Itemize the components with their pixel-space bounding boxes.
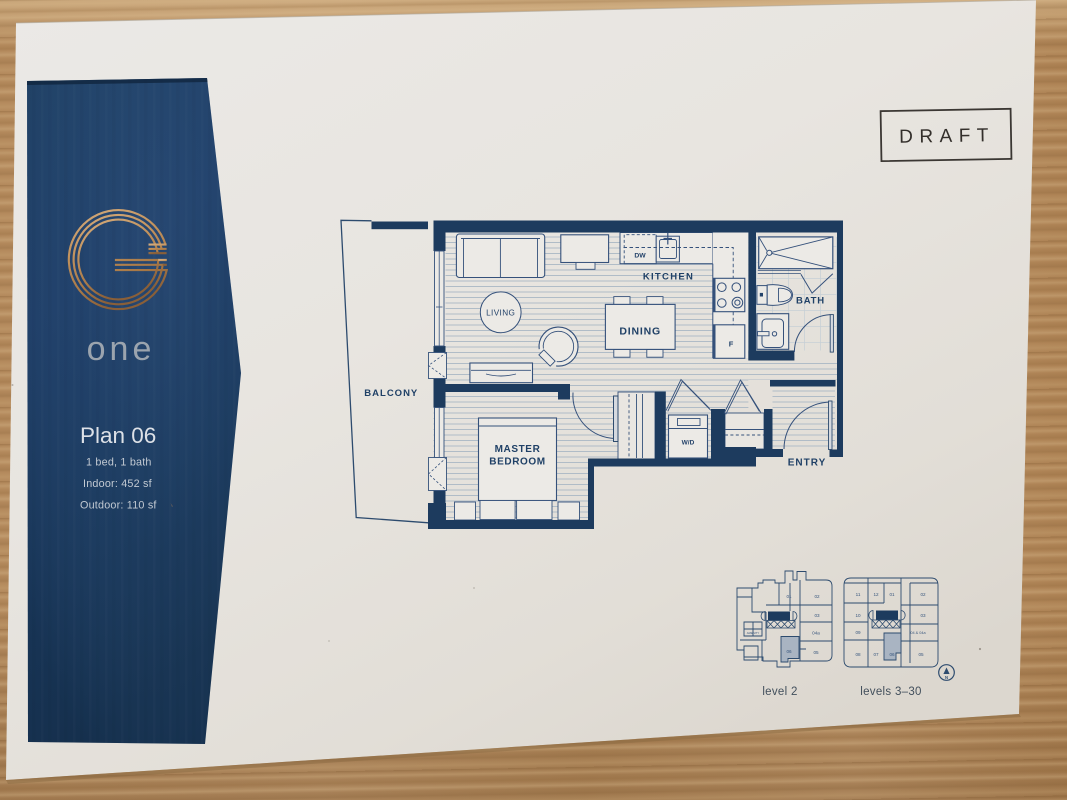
svg-text:01: 01 [786, 594, 792, 599]
svg-text:ENTRY: ENTRY [788, 458, 827, 469]
svg-text:levels 3–30: levels 3–30 [860, 686, 921, 698]
svg-text:03: 03 [920, 613, 926, 618]
svg-text:06: 06 [786, 649, 792, 654]
svg-text:02: 02 [814, 594, 820, 599]
svg-text:11: 11 [856, 592, 861, 597]
svg-text:BATH: BATH [796, 296, 825, 307]
svg-text:10: 10 [855, 613, 861, 618]
svg-text:08: 08 [855, 652, 861, 657]
svg-text:03: 03 [814, 613, 820, 618]
svg-text:04a: 04a [812, 631, 820, 636]
svg-text:DW: DW [634, 253, 646, 260]
svg-text:09: 09 [855, 630, 861, 635]
svg-text:BEDROOM: BEDROOM [489, 457, 545, 468]
svg-text:05: 05 [918, 652, 924, 657]
svg-text:12: 12 [873, 592, 879, 597]
svg-text:level 2: level 2 [762, 686, 797, 698]
svg-text:BALCONY: BALCONY [364, 388, 418, 399]
svg-text:04 & 04a: 04 & 04a [910, 631, 926, 635]
svg-text:KITCHEN: KITCHEN [643, 272, 694, 283]
svg-text:06: 06 [889, 652, 895, 657]
svg-text:01: 01 [889, 592, 895, 597]
svg-text:02: 02 [920, 592, 926, 597]
svg-text:LIVING: LIVING [486, 309, 515, 318]
svg-text:05: 05 [813, 650, 819, 655]
svg-text:DRAFT: DRAFT [899, 125, 995, 148]
svg-text:Outdoor: 110 sf: Outdoor: 110 sf [80, 500, 157, 512]
svg-text:N: N [945, 675, 948, 680]
svg-text:07: 07 [873, 652, 879, 657]
svg-text:AMENITY: AMENITY [747, 631, 760, 635]
svg-text:one: one [87, 330, 156, 368]
svg-text:W/D: W/D [682, 440, 695, 447]
svg-text:MASTER: MASTER [495, 444, 541, 455]
svg-text:Plan 06: Plan 06 [80, 423, 156, 448]
svg-text:1 bed, 1 bath: 1 bed, 1 bath [86, 457, 152, 469]
svg-text:DINING: DINING [619, 326, 661, 338]
svg-text:Indoor: 452 sf: Indoor: 452 sf [83, 478, 153, 490]
svg-text:F: F [729, 340, 734, 349]
